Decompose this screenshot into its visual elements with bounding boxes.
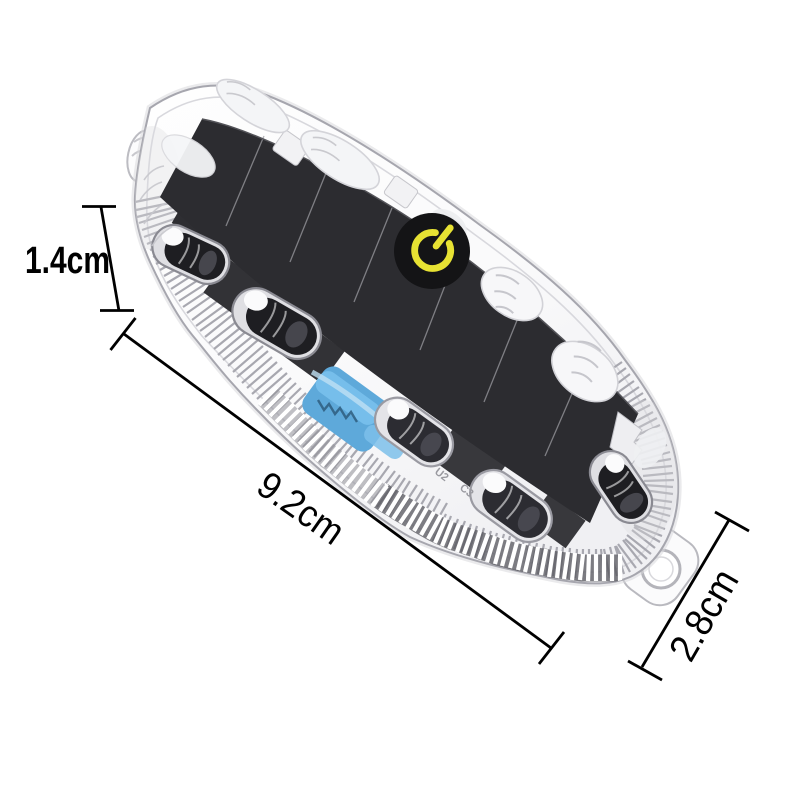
svg-text:1.4cm: 1.4cm — [25, 240, 110, 282]
